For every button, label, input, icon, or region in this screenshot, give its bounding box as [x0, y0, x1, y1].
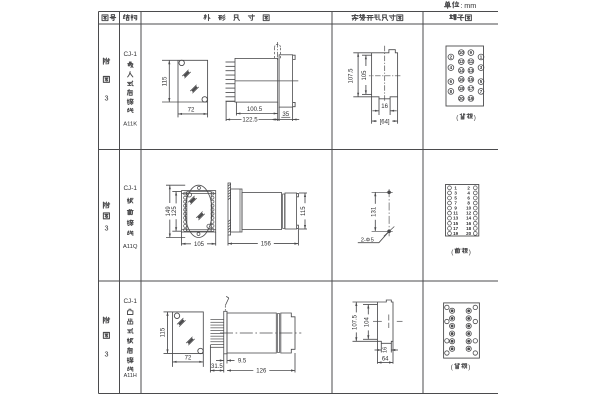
svg-text:5: 5: [371, 237, 374, 243]
svg-text:20: 20: [459, 96, 464, 101]
svg-text:(: (: [451, 364, 454, 371]
svg-text:A11H: A11H: [124, 373, 137, 379]
svg-text:6: 6: [450, 79, 453, 84]
svg-text:10: 10: [459, 50, 464, 55]
svg-text:1: 1: [480, 55, 483, 60]
svg-text:13: 13: [468, 68, 473, 73]
svg-text:): ): [474, 114, 476, 121]
svg-text:): ): [468, 364, 470, 371]
svg-text:72: 72: [188, 107, 195, 114]
svg-text:16: 16: [381, 104, 388, 110]
svg-text:): ): [469, 249, 471, 256]
svg-text:14: 14: [459, 68, 464, 73]
svg-text:125: 125: [172, 206, 178, 217]
svg-text:CJ-1: CJ-1: [123, 185, 137, 192]
svg-text:(: (: [451, 249, 454, 256]
svg-text:11: 11: [469, 59, 474, 64]
svg-text:3: 3: [105, 350, 109, 359]
svg-text:100.5: 100.5: [247, 106, 263, 113]
svg-text:CJ-1: CJ-1: [123, 298, 137, 305]
svg-text:3: 3: [105, 94, 109, 103]
svg-text:4: 4: [450, 65, 453, 70]
svg-text:(: (: [456, 114, 459, 121]
svg-text:7: 7: [480, 89, 483, 94]
svg-text:115: 115: [301, 206, 307, 216]
svg-text:12: 12: [459, 59, 464, 64]
svg-text:9.5: 9.5: [238, 359, 247, 365]
svg-text:122.5: 122.5: [242, 116, 258, 123]
svg-text:72: 72: [185, 356, 192, 362]
svg-text:31.5: 31.5: [211, 364, 223, 370]
svg-text:107.5: 107.5: [352, 314, 358, 330]
svg-text:15: 15: [468, 77, 473, 82]
svg-text:16: 16: [382, 347, 388, 353]
svg-text:3: 3: [105, 224, 109, 233]
svg-text:8: 8: [450, 89, 453, 94]
svg-text:105: 105: [194, 242, 205, 248]
svg-text:19: 19: [468, 96, 473, 101]
svg-text:CJ-1: CJ-1: [123, 51, 137, 58]
svg-text:115: 115: [161, 76, 168, 86]
svg-text:131: 131: [371, 206, 377, 217]
svg-text:20: 20: [466, 231, 472, 236]
svg-text:64: 64: [382, 356, 389, 362]
svg-text:A11Q: A11Q: [123, 244, 138, 250]
svg-text:16: 16: [459, 77, 464, 82]
svg-text:3: 3: [480, 65, 483, 70]
svg-text:18: 18: [459, 86, 464, 91]
svg-text:9: 9: [470, 50, 473, 55]
svg-text:107.5: 107.5: [349, 68, 355, 84]
svg-text:mm: mm: [464, 1, 476, 10]
svg-text:2: 2: [450, 55, 453, 60]
svg-text:105: 105: [362, 70, 368, 81]
svg-text:149: 149: [166, 206, 172, 217]
svg-text:156: 156: [261, 242, 272, 248]
svg-text:126: 126: [256, 369, 267, 375]
svg-text:115: 115: [161, 327, 167, 337]
svg-text::: :: [460, 3, 462, 10]
svg-text:A11K: A11K: [123, 122, 137, 128]
svg-text:[64]: [64]: [380, 119, 390, 125]
svg-text:17: 17: [468, 86, 473, 91]
svg-text:104: 104: [364, 317, 370, 328]
svg-text:5: 5: [480, 79, 483, 84]
svg-text:19: 19: [453, 231, 459, 236]
